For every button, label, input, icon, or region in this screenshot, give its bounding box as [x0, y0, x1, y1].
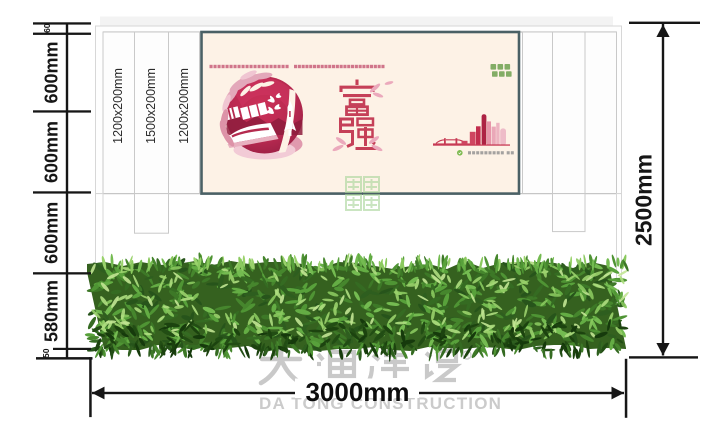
svg-text:600mm: 600mm [42, 121, 62, 183]
svg-text:580mm: 580mm [42, 280, 62, 342]
svg-text:1200x200mm: 1200x200mm [177, 68, 191, 144]
svg-text:50: 50 [41, 348, 51, 358]
svg-text:3000mm: 3000mm [305, 377, 409, 407]
svg-text:2500mm: 2500mm [631, 154, 657, 246]
svg-text:1500x200mm: 1500x200mm [144, 68, 158, 144]
svg-text:600mm: 600mm [42, 41, 62, 103]
svg-text:600mm: 600mm [42, 202, 62, 264]
svg-text:60: 60 [42, 23, 52, 33]
svg-text:1200x200mm: 1200x200mm [111, 68, 125, 144]
